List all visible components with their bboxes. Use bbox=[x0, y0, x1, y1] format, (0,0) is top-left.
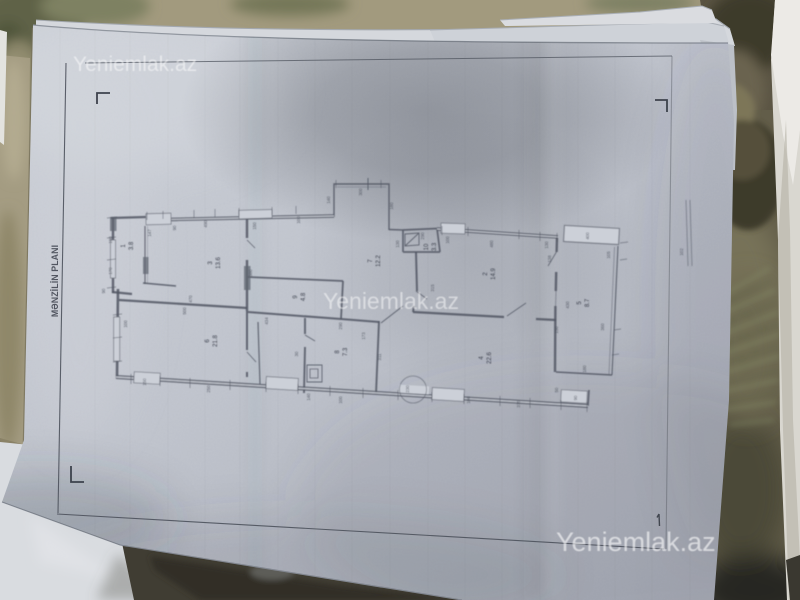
svg-text:Yeniemlak.az: Yeniemlak.az bbox=[556, 527, 716, 557]
svg-text:Yeniemlak.az: Yeniemlak.az bbox=[323, 288, 459, 314]
svg-text:480: 480 bbox=[489, 240, 494, 248]
svg-text:90: 90 bbox=[172, 225, 177, 230]
svg-text:90: 90 bbox=[573, 395, 578, 400]
svg-text:300: 300 bbox=[358, 188, 363, 196]
svg-text:13.6: 13.6 bbox=[216, 257, 222, 269]
svg-text:434: 434 bbox=[264, 317, 269, 325]
svg-text:173: 173 bbox=[361, 332, 366, 340]
svg-text:4.8: 4.8 bbox=[301, 292, 307, 301]
svg-text:100: 100 bbox=[338, 396, 343, 404]
svg-text:180: 180 bbox=[582, 365, 587, 373]
svg-text:130: 130 bbox=[544, 241, 549, 249]
svg-text:130: 130 bbox=[395, 240, 400, 248]
svg-text:7.3: 7.3 bbox=[343, 347, 349, 356]
svg-text:140: 140 bbox=[306, 393, 311, 401]
svg-text:290: 290 bbox=[420, 232, 425, 240]
svg-text:250: 250 bbox=[206, 385, 211, 393]
svg-text:22.6: 22.6 bbox=[487, 352, 493, 364]
svg-text:430: 430 bbox=[565, 301, 570, 309]
svg-text:100: 100 bbox=[445, 236, 450, 244]
svg-text:470: 470 bbox=[188, 295, 193, 303]
svg-text:90: 90 bbox=[101, 288, 106, 293]
svg-text:14.9: 14.9 bbox=[491, 268, 497, 280]
svg-text:290: 290 bbox=[338, 322, 343, 330]
svg-text:100: 100 bbox=[466, 396, 471, 404]
svg-text:380: 380 bbox=[248, 269, 253, 277]
svg-text:MƏNZİLİN PLANI: MƏNZİLİN PLANI bbox=[50, 245, 60, 317]
svg-text:50: 50 bbox=[554, 387, 559, 392]
svg-text:150: 150 bbox=[252, 222, 257, 230]
svg-text:360: 360 bbox=[600, 323, 605, 331]
svg-text:150: 150 bbox=[554, 326, 559, 334]
svg-text:138: 138 bbox=[547, 255, 552, 263]
svg-text:Yeniemlak.az: Yeniemlak.az bbox=[73, 53, 197, 76]
svg-text:100: 100 bbox=[296, 216, 301, 224]
svg-text:140: 140 bbox=[326, 196, 331, 204]
svg-text:400: 400 bbox=[585, 232, 590, 240]
svg-text:180: 180 bbox=[389, 202, 394, 210]
svg-text:105: 105 bbox=[606, 251, 611, 259]
svg-text:12.2: 12.2 bbox=[376, 255, 382, 267]
svg-text:490: 490 bbox=[203, 220, 208, 228]
svg-text:3.3: 3.3 bbox=[432, 242, 438, 251]
svg-text:230: 230 bbox=[405, 385, 410, 393]
svg-text:8.7: 8.7 bbox=[585, 298, 591, 307]
svg-text:102: 102 bbox=[679, 248, 684, 256]
svg-text:375: 375 bbox=[516, 400, 521, 408]
svg-text:10: 10 bbox=[424, 243, 430, 250]
svg-text:3.8: 3.8 bbox=[129, 241, 135, 250]
svg-text:170: 170 bbox=[108, 267, 113, 275]
svg-text:190: 190 bbox=[108, 236, 113, 244]
svg-text:100: 100 bbox=[123, 320, 128, 328]
svg-text:147: 147 bbox=[147, 229, 152, 237]
svg-text:500: 500 bbox=[182, 307, 187, 315]
svg-text:150: 150 bbox=[142, 378, 147, 386]
svg-text:311: 311 bbox=[377, 353, 382, 361]
svg-text:21.8: 21.8 bbox=[213, 335, 219, 347]
svg-text:30: 30 bbox=[294, 351, 299, 356]
